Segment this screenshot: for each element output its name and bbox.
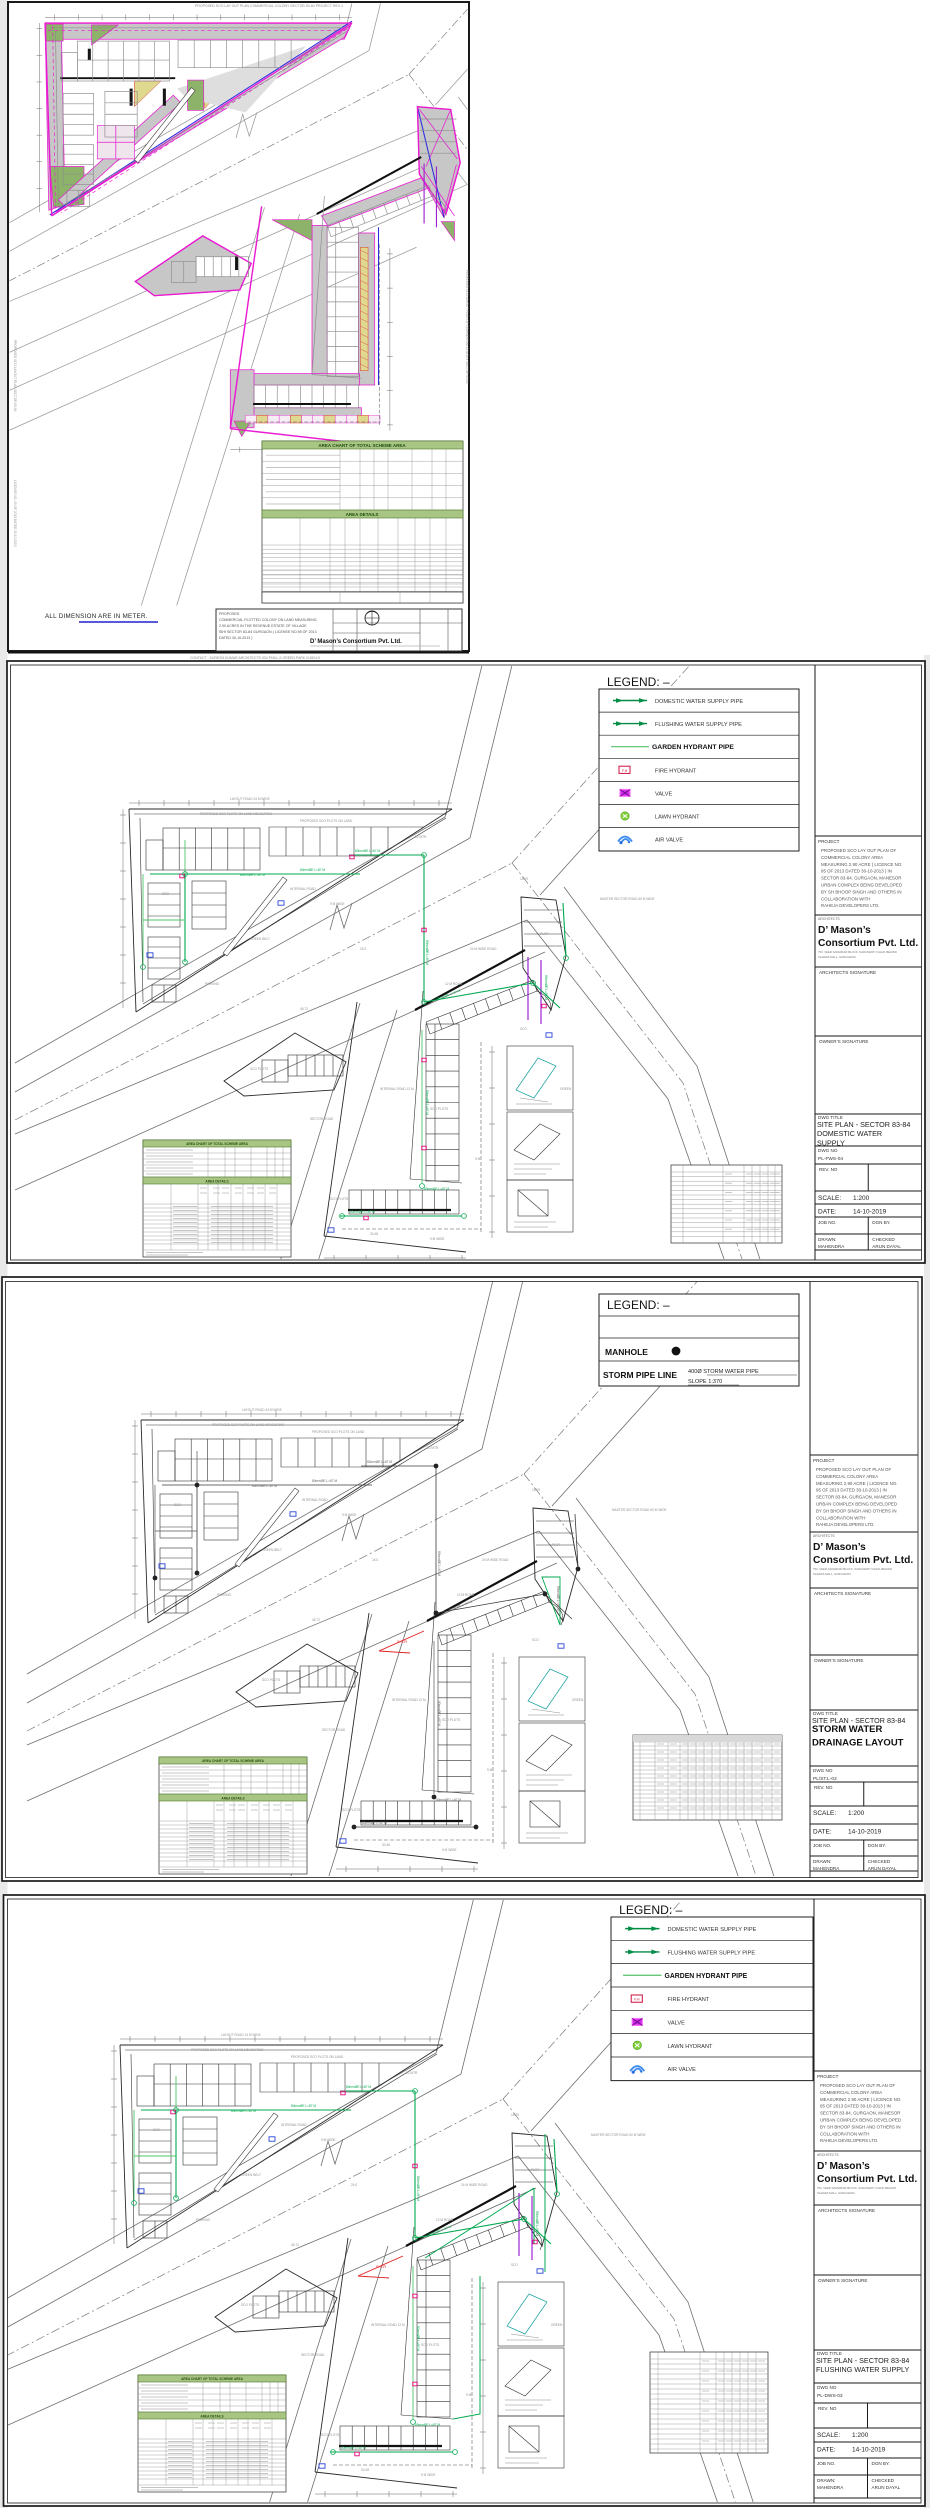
svg-text:DRAINAGE LAYOUT: DRAINAGE LAYOUT [812, 1738, 904, 1749]
svg-text:SAHARA MALL, GURUGRAM: SAHARA MALL, GURUGRAM [813, 1572, 851, 1576]
svg-text:REV. NO: REV. NO [814, 1785, 833, 1790]
svg-text:AREA DETAILS: AREA DETAILS [205, 1180, 228, 1184]
svg-text:SCO: SCO [511, 2263, 518, 2267]
svg-text:12 MTR: 12 MTR [406, 2071, 418, 2075]
svg-text:80mmØE L=87 M: 80mmØE L=87 M [350, 1210, 375, 1214]
svg-text:12 MTR: 12 MTR [427, 1446, 439, 1450]
svg-text:RAHEJA DEVELOPERS LTD.: RAHEJA DEVELOPERS LTD. [820, 2138, 878, 2143]
svg-text:9 M WIDE: 9 M WIDE [321, 2138, 336, 2142]
svg-text:80mmØE L=87 M: 80mmØE L=87 M [424, 1187, 449, 1191]
svg-text:GARDEN HYDRANT PIPE: GARDEN HYDRANT PIPE [652, 744, 734, 751]
svg-text:SITE PLAN - SECTOR 83-84: SITE PLAN - SECTOR 83-84 [816, 2356, 909, 2365]
svg-text:PROPOSED SCO PLOTS ON LAND MEA: PROPOSED SCO PLOTS ON LAND MEASURING [191, 2048, 264, 2052]
svg-text:INTERNAL ROAD 12 M: INTERNAL ROAD 12 M [392, 1698, 426, 1702]
svg-text:D’ Mason’s Consortium Pvt. Ltd: D’ Mason’s Consortium Pvt. Ltd. [310, 639, 402, 645]
svg-text:PARKING: PARKING [217, 1593, 232, 1597]
svg-text:PROPOSED SCO LAYOUT PLAN OF CO: PROPOSED SCO LAYOUT PLAN OF COMMERCIAL C… [465, 270, 469, 384]
svg-text:PARKING: PARKING [196, 2218, 211, 2222]
svg-text:DRAWN:: DRAWN: [818, 1237, 836, 1242]
svg-text:18.29: 18.29 [532, 1488, 540, 1492]
svg-text:PROJECT: PROJECT [818, 839, 840, 844]
svg-text:95 OF 2013 DATED 30-10-2013 ): 95 OF 2013 DATED 30-10-2013 ) IN [816, 1488, 887, 1493]
svg-text:INTERNAL ROAD 12 M: INTERNAL ROAD 12 M [380, 1087, 414, 1091]
svg-text:80mmØE L=87 M: 80mmØE L=87 M [416, 2176, 420, 2201]
svg-text:PLOT: PLOT [531, 2168, 539, 2172]
svg-text:Consortium Pvt. Ltd.: Consortium Pvt. Ltd. [818, 938, 918, 949]
svg-text:GREEN BELT: GREEN BELT [241, 2173, 261, 2177]
svg-text:80mmØE L=87 M: 80mmØE L=87 M [535, 2211, 539, 2236]
svg-text:D’ Mason’s: D’ Mason’s [818, 925, 871, 936]
svg-text:PLOT: PLOT [540, 932, 548, 936]
svg-text:12 MTR: 12 MTR [415, 835, 427, 839]
svg-text:STORM WATER: STORM WATER [812, 1724, 883, 1735]
svg-text:LAYOUT ROAD 24 M WIDE: LAYOUT ROAD 24 M WIDE [242, 1408, 282, 1412]
svg-text:AIR VALVE: AIR VALVE [668, 2067, 697, 2073]
svg-text:RAHEJA DEVELOPERS LTD.: RAHEJA DEVELOPERS LTD. [821, 903, 879, 908]
svg-text:PROPOSED SCO PLOTS ON LAND: PROPOSED SCO PLOTS ON LAND [291, 2055, 344, 2059]
svg-text:INTERNAL ROAD: INTERNAL ROAD [281, 2123, 307, 2127]
svg-text:750, VEER SAVARKAR BLOCK, SARA: 750, VEER SAVARKAR BLOCK, SARASWATI VIHA… [817, 2186, 896, 2190]
svg-text:DGN BY.: DGN BY. [872, 1220, 890, 1225]
svg-text:MAHENDRA: MAHENDRA [817, 2485, 844, 2490]
svg-text:REV. NO: REV. NO [818, 2406, 837, 2411]
svg-text:LEGEND: –: LEGEND: – [607, 1298, 670, 1312]
svg-text:30.48: 30.48 [382, 1843, 390, 1847]
svg-text:DATE:: DATE: [813, 1829, 832, 1836]
svg-text:80mmØE L=87 M: 80mmØE L=87 M [556, 1586, 560, 1611]
svg-text:ARCHITECTS SIGNATURE: ARCHITECTS SIGNATURE [819, 970, 876, 975]
svg-text:CHECKED: CHECKED [872, 2478, 895, 2483]
svg-text:AIR VALVE: AIR VALVE [655, 838, 683, 844]
svg-text:SCO PLOTS: SCO PLOTS [430, 1107, 448, 1111]
svg-text:CONTACT : SURESH KUMAR ARCHIT: CONTACT : SURESH KUMAR ARCHITECTS 934 PH… [190, 656, 320, 660]
svg-text:URBAN COMPLEX BEING DEVELOPED: URBAN COMPLEX BEING DEVELOPED [820, 2118, 901, 2123]
svg-text:PROPOSED SCO PLOTS ON LAND: PROPOSED SCO PLOTS ON LAND [312, 1430, 365, 1434]
svg-text:PLOT: PLOT [552, 1543, 560, 1547]
svg-text:80mmØE L=87 M: 80mmØE L=87 M [436, 1798, 461, 1802]
svg-text:DATED 30-10-2013 ): DATED 30-10-2013 ) [219, 636, 253, 640]
svg-text:LEGEND: –: LEGEND: – [619, 1903, 683, 1917]
svg-text:Consortium Pvt. Ltd.: Consortium Pvt. Ltd. [817, 2174, 917, 2185]
svg-text:URBAN COMPLEX BEING DEVELOPED: URBAN COMPLEX BEING DEVELOPED [816, 1502, 897, 1507]
svg-text:SECTOR ROAD: SECTOR ROAD [310, 1117, 334, 1121]
svg-text:MASTER SECTOR ROAD 60 M WIDE: MASTER SECTOR ROAD 60 M WIDE [591, 2133, 646, 2137]
svg-text:MAHENDRA: MAHENDRA [813, 1866, 840, 1871]
svg-text:24.0: 24.0 [351, 2183, 357, 2187]
svg-text:80mmØE L=87 M: 80mmØE L=87 M [544, 975, 548, 1000]
svg-text:80mmØE L=87 M: 80mmØE L=87 M [367, 1460, 392, 1464]
svg-text:PROPOSED SCO LAY OUT PLAN OF: PROPOSED SCO LAY OUT PLAN OF [816, 1467, 891, 1472]
svg-text:9 M: 9 M [487, 1768, 493, 1772]
svg-text:LAYOUT ROAD 24 M WIDE: LAYOUT ROAD 24 M WIDE [221, 2033, 261, 2037]
svg-text:MASTER SECTOR ROAD 60 M WIDE: MASTER SECTOR ROAD 60 M WIDE [612, 1508, 667, 1512]
svg-text:INTERNAL ROAD: INTERNAL ROAD [290, 887, 316, 891]
svg-text:COLLABORATION WITH: COLLABORATION WITH [821, 896, 870, 901]
svg-text:JOB NO.: JOB NO. [817, 2461, 835, 2466]
svg-text:1:200: 1:200 [852, 2432, 869, 2439]
svg-text:80mmØE L=87 M: 80mmØE L=87 M [437, 1701, 441, 1726]
svg-text:24 M WIDE ROAD: 24 M WIDE ROAD [470, 947, 497, 951]
svg-text:AREA CHART OF TOTAL SCHEME ARE: AREA CHART OF TOTAL SCHEME AREA [181, 2377, 243, 2381]
svg-text:ARUN DAYAL: ARUN DAYAL [868, 1866, 897, 1871]
svg-text:PL-DWS-03: PL-DWS-03 [817, 2393, 843, 2399]
svg-text:GREEN BELT: GREEN BELT [250, 937, 270, 941]
svg-text:DWG NO: DWG NO [813, 1768, 833, 1773]
svg-text:GREEN BELT: GREEN BELT [262, 1548, 282, 1552]
svg-text:AREA DETAILS: AREA DETAILS [346, 512, 379, 517]
svg-text:24.0: 24.0 [360, 947, 366, 951]
svg-text:SCO PLOTS: SCO PLOTS [442, 1718, 460, 1722]
svg-text:80mmØE L=87 M: 80mmØE L=87 M [416, 2326, 420, 2351]
svg-text:MASTER SECTOR ROAD 60 M WIDE: MASTER SECTOR ROAD 60 M WIDE [600, 897, 655, 901]
svg-text:INTERNAL ROAD 12 M: INTERNAL ROAD 12 M [371, 2323, 405, 2327]
svg-text:SLOPE 1:370: SLOPE 1:370 [688, 1379, 722, 1385]
svg-text:REV. NO: REV. NO [819, 1167, 838, 1172]
svg-text:SUPPLY: SUPPLY [817, 1138, 845, 1147]
svg-text:AREA CHART OF TOTAL SCHEME ARE: AREA CHART OF TOTAL SCHEME AREA [318, 443, 406, 448]
svg-text:SCO PLOTS: SCO PLOTS [321, 2433, 339, 2437]
svg-text:SECTOR 83-84, GURGAON, MANESO: SECTOR 83-84, GURGAON, MANESOR [816, 1495, 896, 1500]
svg-text:DRAWN:: DRAWN: [813, 1859, 831, 1864]
svg-text:1:200: 1:200 [853, 1195, 870, 1202]
svg-text:ARCHITECTS: ARCHITECTS [818, 917, 840, 921]
svg-text:GARDEN HYDRANT PIPE: GARDEN HYDRANT PIPE [665, 1973, 748, 1980]
svg-text:18.29: 18.29 [511, 2113, 519, 2117]
svg-text:MEASURING 2.90 ACRE ( LICENCE: MEASURING 2.90 ACRE ( LICENCE NO. [816, 1481, 898, 1486]
svg-text:DGN BY.: DGN BY. [868, 1843, 886, 1848]
svg-text:SCALE:: SCALE: [813, 1810, 836, 1817]
svg-text:80mmØE L=87 M: 80mmØE L=87 M [231, 2109, 256, 2113]
svg-text:FLUSHING WATER SUPPLY PIPE: FLUSHING WATER SUPPLY PIPE [655, 722, 742, 728]
svg-text:ARCHITECTS SIGNATURE: ARCHITECTS SIGNATURE [814, 1591, 871, 1596]
svg-text:PROPOSED SCO PLOTS ON LAND MEA: PROPOSED SCO PLOTS ON LAND MEASURING [200, 812, 273, 816]
svg-text:SECTOR ROAD: SECTOR ROAD [301, 2353, 325, 2357]
svg-text:DRAWN:: DRAWN: [817, 2478, 835, 2483]
svg-text:ARUN DAYAL: ARUN DAYAL [872, 2485, 901, 2490]
svg-text:COMMERCIAL COLONY AREA: COMMERCIAL COLONY AREA [816, 1474, 878, 1479]
svg-text:URBAN COMPLEX BEING DEVELOPED: URBAN COMPLEX BEING DEVELOPED [821, 883, 902, 888]
svg-text:FIRE HYDRANT: FIRE HYDRANT [655, 768, 697, 774]
svg-text:OWNER’S SIGNATURE: OWNER’S SIGNATURE [814, 1658, 863, 1663]
svg-text:SCO: SCO [153, 2128, 160, 2132]
svg-text:SCO: SCO [162, 892, 169, 896]
svg-text:PROPOSED SCO PLOTS ON LAND: PROPOSED SCO PLOTS ON LAND [300, 819, 353, 823]
svg-text:AREA CHART OF TOTAL SCHEME ARE: AREA CHART OF TOTAL SCHEME AREA [202, 1759, 264, 1763]
svg-text:SCO: SCO [532, 1638, 539, 1642]
svg-text:SCALE:: SCALE: [817, 2432, 840, 2439]
svg-text:GREEN: GREEN [560, 1087, 572, 1091]
svg-text:45.72: 45.72 [300, 1007, 308, 1011]
svg-text:SCO PLOTS: SCO PLOTS [250, 1067, 268, 1071]
svg-text:80mmØE L=87 M: 80mmØE L=87 M [425, 940, 429, 965]
svg-text:F.H: F.H [622, 769, 628, 773]
svg-text:BY SH BHOOP SINGH AND OTHERS: BY SH BHOOP SINGH AND OTHERS IN [821, 889, 902, 894]
svg-text:PL/ST.L-02: PL/ST.L-02 [813, 1776, 837, 1782]
svg-text:PROPOSED SCO LAY OUT PLAN OF: PROPOSED SCO LAY OUT PLAN OF [821, 848, 896, 853]
svg-text:DGN BY.: DGN BY. [872, 2461, 890, 2466]
svg-text:SAHARA MALL, GURUGRAM: SAHARA MALL, GURUGRAM [818, 955, 856, 959]
svg-text:SCO PLOTS: SCO PLOTS [342, 1808, 360, 1812]
svg-text:2.90 ACRES IN THE REVENUE ESTA: 2.90 ACRES IN THE REVENUE ESTATE OF VILL… [219, 624, 307, 628]
svg-text:AREA DETAILS: AREA DETAILS [221, 1797, 244, 1801]
svg-text:PROPOSED SCO LAY OUT PLAN OF: PROPOSED SCO LAY OUT PLAN OF [820, 2083, 895, 2088]
svg-text:ARCHITECTS: ARCHITECTS [817, 2153, 839, 2157]
svg-text:D’ Mason’s: D’ Mason’s [813, 1542, 866, 1553]
svg-text:FIRE HYDRANT: FIRE HYDRANT [668, 1997, 710, 2003]
svg-text:80mmØE L=87 M: 80mmØE L=87 M [355, 849, 380, 853]
svg-text:ARCHITECTS SIGNATURE: ARCHITECTS SIGNATURE [818, 2208, 875, 2213]
svg-text:80mmØE L=87 M: 80mmØE L=87 M [252, 1484, 277, 1488]
svg-text:9 M: 9 M [475, 1157, 481, 1161]
svg-text:9 M WIDE: 9 M WIDE [442, 1848, 457, 1852]
svg-text:MANHOLE: MANHOLE [605, 1347, 648, 1357]
svg-text:12 M ROAD: 12 M ROAD [436, 2218, 454, 2222]
svg-text:COMMERCIAL COLONY AREA: COMMERCIAL COLONY AREA [821, 855, 883, 860]
svg-text:COLLABORATION WITH: COLLABORATION WITH [820, 2131, 869, 2136]
svg-text:DOMESTIC WATER SUPPLY PIPE: DOMESTIC WATER SUPPLY PIPE [668, 1927, 757, 1933]
svg-text:DATE:: DATE: [817, 2447, 836, 2454]
svg-text:SCO: SCO [174, 1503, 181, 1507]
svg-text:24 M WIDE ROAD: 24 M WIDE ROAD [482, 1558, 509, 1562]
svg-text:COLLABORATION WITH: COLLABORATION WITH [816, 1515, 865, 1520]
svg-text:DOMESTIC WATER SUPPLY PIPE: DOMESTIC WATER SUPPLY PIPE [655, 699, 743, 705]
svg-text:CHECKED: CHECKED [872, 1237, 895, 1242]
svg-text:80mmØE L=87 M: 80mmØE L=87 M [437, 1551, 441, 1576]
svg-text:9 M: 9 M [466, 2393, 472, 2397]
svg-text:18.29: 18.29 [520, 877, 528, 881]
svg-text:GREEN: GREEN [572, 1698, 584, 1702]
svg-text:FLUSHING WATER SUPPLY PIPE: FLUSHING WATER SUPPLY PIPE [668, 1950, 756, 1956]
svg-text:BY SH BHOOP SINGH AND OTHERS: BY SH BHOOP SINGH AND OTHERS IN [820, 2124, 901, 2129]
svg-text:400Ø STORM WATER PIPE: 400Ø STORM WATER PIPE [688, 1369, 759, 1375]
svg-text:750, VEER SAVARKAR BLOCK, SARA: 750, VEER SAVARKAR BLOCK, SARASWATI VIHA… [818, 950, 897, 954]
svg-text:SCALE:: SCALE: [818, 1195, 841, 1202]
svg-text:LAYOUT ROAD 24 M WIDE: LAYOUT ROAD 24 M WIDE [230, 797, 270, 801]
svg-text:AREA CHART OF TOTAL SCHEME ARE: AREA CHART OF TOTAL SCHEME AREA [186, 1142, 248, 1146]
svg-text:95 OF 2013 DATED 30-10-2013 ): 95 OF 2013 DATED 30-10-2013 ) IN [820, 2104, 891, 2109]
svg-text:LAWN HYDRANT: LAWN HYDRANT [655, 815, 700, 821]
svg-text:DWG NO: DWG NO [818, 1148, 838, 1153]
svg-text:Consortium Pvt. Ltd.: Consortium Pvt. Ltd. [813, 1555, 913, 1566]
svg-text:9 M WIDE: 9 M WIDE [330, 902, 345, 906]
svg-text:LAWN HYDRANT: LAWN HYDRANT [668, 2044, 713, 2050]
svg-text:95 OF 2013 DATED 30-10-2013 ): 95 OF 2013 DATED 30-10-2013 ) IN [821, 869, 892, 874]
svg-text:45.72: 45.72 [291, 2243, 299, 2247]
svg-text:STORM PIPE LINE: STORM PIPE LINE [603, 1370, 677, 1380]
svg-text:SECTOR ROAD: SECTOR ROAD [322, 1728, 346, 1732]
svg-text:PROPOSED SCO PLOTS ON LAND MEA: PROPOSED SCO PLOTS ON LAND MEASURING [212, 1423, 285, 1427]
svg-text:PL-FWS-04: PL-FWS-04 [818, 1156, 843, 1162]
svg-text:VALVE: VALVE [655, 791, 672, 797]
svg-text:12 M ROAD: 12 M ROAD [457, 1593, 475, 1597]
svg-text:INTERNAL ROAD: INTERNAL ROAD [302, 1498, 328, 1502]
svg-text:SCO PLOTS: SCO PLOTS [330, 1197, 348, 1201]
svg-text:80mmØE L=87 M: 80mmØE L=87 M [362, 1821, 387, 1825]
svg-text:SCO: SCO [520, 1027, 527, 1031]
svg-text:45.72: 45.72 [312, 1618, 320, 1622]
svg-text:14-10-2019: 14-10-2019 [852, 2447, 886, 2454]
svg-text:S.V.R: S.V.R [376, 2264, 386, 2269]
svg-text:SCO PLOTS: SCO PLOTS [421, 2343, 439, 2347]
svg-text:PARKING: PARKING [205, 982, 220, 986]
svg-text:F.H: F.H [634, 1998, 640, 2002]
svg-text:JOB NO.: JOB NO. [813, 1843, 831, 1848]
svg-text:SITE PLAN - SECTOR 83-84: SITE PLAN - SECTOR 83-84 [817, 1120, 910, 1129]
svg-text:COMMERCIAL PLOTTED COLONY ON L: COMMERCIAL PLOTTED COLONY ON LAND MEASUR… [219, 618, 317, 622]
svg-text:24.0: 24.0 [372, 1558, 378, 1562]
svg-text:12 M ROAD: 12 M ROAD [445, 982, 463, 986]
svg-text:9 M WIDE: 9 M WIDE [430, 1237, 445, 1241]
svg-text:80mmØE L=87 M: 80mmØE L=87 M [415, 2423, 440, 2427]
svg-text:14-10-2019: 14-10-2019 [848, 1829, 882, 1836]
svg-text:SCO PLOTS: SCO PLOTS [241, 2303, 259, 2307]
svg-text:80mmØE L=87 M: 80mmØE L=87 M [291, 2104, 316, 2108]
svg-text:PROPOSED: PROPOSED [219, 612, 240, 616]
svg-text:SCO PLOTS: SCO PLOTS [262, 1678, 280, 1682]
svg-text:PROJECT: PROJECT [813, 1458, 835, 1463]
svg-text:30.48: 30.48 [370, 1232, 378, 1236]
svg-text:9 M WIDE: 9 M WIDE [342, 1513, 357, 1517]
svg-text:MEASURING 2.90 ACRE ( LICENCE: MEASURING 2.90 ACRE ( LICENCE NO. [821, 862, 903, 867]
svg-text:80mmØE L=87 M: 80mmØE L=87 M [425, 1090, 429, 1115]
svg-text:FLUSHING WATER SUPPLY: FLUSHING WATER SUPPLY [816, 2365, 910, 2374]
svg-text:LICENSE NO. 95 OF 2013 DATED 3: LICENSE NO. 95 OF 2013 DATED 30-10-2013 [13, 480, 17, 547]
svg-text:24 M WIDE ROAD: 24 M WIDE ROAD [461, 2183, 488, 2187]
svg-text:SAHARA MALL, GURUGRAM: SAHARA MALL, GURUGRAM [817, 2191, 855, 2195]
svg-text:30.48: 30.48 [361, 2468, 369, 2472]
svg-text:SECTOR 83-84, GURGAON, MANESO: SECTOR 83-84, GURGAON, MANESOR [821, 876, 901, 881]
svg-text:ARUN DAYAL: ARUN DAYAL [872, 1244, 901, 1249]
svg-text:ARCHITECTS: ARCHITECTS [813, 1534, 835, 1538]
svg-text:1:200: 1:200 [848, 1810, 865, 1817]
svg-text:PROPOSED SCO LAYOUT PLAN SECTO: PROPOSED SCO LAYOUT PLAN SECTOR 83-84 [13, 340, 17, 412]
svg-text:SECTOR 83-84, GURGAON, MANESO: SECTOR 83-84, GURGAON, MANESOR [820, 2111, 900, 2116]
svg-text:PROJECT: PROJECT [817, 2074, 839, 2079]
svg-text:80mmØE L=87 M: 80mmØE L=87 M [300, 868, 325, 872]
svg-text:GREEN: GREEN [551, 2323, 563, 2327]
svg-text:MAHENDRA: MAHENDRA [818, 1244, 845, 1249]
svg-text:DATE:: DATE: [818, 1209, 837, 1216]
svg-text:VALVE: VALVE [668, 2020, 686, 2026]
svg-text:ALL DIMENSION ARE IN METER.: ALL DIMENSION ARE IN METER. [45, 613, 148, 620]
svg-text:SIHI SECTOR 83-84 GURGAON ( L: SIHI SECTOR 83-84 GURGAON ( LICENSE NO.9… [219, 630, 317, 634]
svg-text:80mmØE L=87 M: 80mmØE L=87 M [312, 1479, 337, 1483]
svg-text:80mmØE L=87 M: 80mmØE L=87 M [341, 2446, 366, 2450]
svg-text:S.V.R: S.V.R [397, 1639, 407, 1644]
svg-text:COMMERCIAL COLONY AREA: COMMERCIAL COLONY AREA [820, 2090, 882, 2095]
svg-text:80mmØE L=87 M: 80mmØE L=87 M [346, 2085, 371, 2089]
svg-text:LEGEND: –: LEGEND: – [607, 675, 670, 689]
svg-text:9 M WIDE: 9 M WIDE [421, 2473, 436, 2477]
svg-text:JOB NO.: JOB NO. [818, 1220, 836, 1225]
svg-text:OWNER’S SIGNATURE: OWNER’S SIGNATURE [819, 1039, 868, 1044]
svg-text:CHECKED: CHECKED [868, 1859, 891, 1864]
svg-text:DWG NO: DWG NO [817, 2385, 837, 2390]
svg-text:D’ Mason’s: D’ Mason’s [817, 2161, 870, 2172]
svg-text:750, VEER SAVARKAR BLOCK, SARA: 750, VEER SAVARKAR BLOCK, SARASWATI VIHA… [813, 1567, 892, 1571]
svg-text:PROPOSED SCO LAY OUT PLAN COMM: PROPOSED SCO LAY OUT PLAN COMMERCIAL COL… [195, 4, 343, 8]
svg-text:MEASURING 2.90 ACRE ( LICENCE: MEASURING 2.90 ACRE ( LICENCE NO. [820, 2097, 902, 2102]
svg-text:OWNER’S SIGNATURE: OWNER’S SIGNATURE [818, 2278, 867, 2283]
svg-text:DOMESTIC WATER: DOMESTIC WATER [817, 1129, 882, 1138]
svg-text:80mmØE L=87 M: 80mmØE L=87 M [240, 873, 265, 877]
svg-text:AREA DETAILS: AREA DETAILS [200, 2415, 223, 2419]
svg-text:BY SH BHOOP SINGH AND OTHERS: BY SH BHOOP SINGH AND OTHERS IN [816, 1508, 897, 1513]
svg-text:RAHEJA DEVELOPERS LTD.: RAHEJA DEVELOPERS LTD. [816, 1522, 874, 1527]
svg-text:14-10-2019: 14-10-2019 [853, 1209, 887, 1216]
